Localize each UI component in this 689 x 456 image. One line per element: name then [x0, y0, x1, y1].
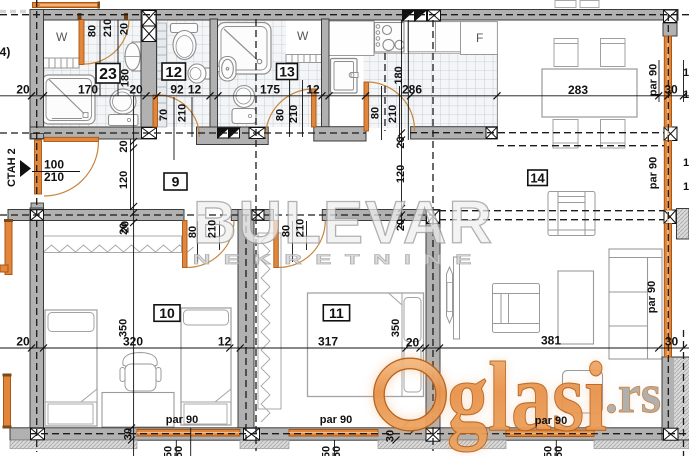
svg-text:50: 50 — [553, 446, 565, 456]
svg-text:9: 9 — [172, 174, 180, 190]
svg-text:4): 4) — [0, 45, 10, 59]
svg-text:210: 210 — [102, 19, 114, 37]
svg-text:10: 10 — [159, 305, 175, 321]
svg-text:W: W — [297, 29, 309, 43]
svg-text:par 90: par 90 — [535, 415, 567, 427]
svg-text:20: 20 — [395, 136, 407, 148]
svg-text:12: 12 — [165, 64, 182, 81]
svg-text:12: 12 — [306, 83, 320, 97]
svg-text:180: 180 — [120, 69, 132, 87]
svg-text:12: 12 — [218, 335, 232, 349]
svg-text:50: 50 — [331, 446, 343, 456]
svg-text:.rs: .rs — [605, 364, 661, 424]
svg-text:1: 1 — [683, 89, 689, 101]
svg-text:par 90: par 90 — [166, 414, 198, 426]
svg-text:20: 20 — [395, 219, 407, 231]
svg-text:210: 210 — [288, 105, 300, 123]
svg-text:20: 20 — [120, 221, 132, 233]
svg-text:317: 317 — [318, 335, 338, 349]
svg-text:20: 20 — [118, 140, 130, 152]
svg-text:210: 210 — [44, 170, 64, 184]
svg-text:20: 20 — [406, 336, 420, 350]
svg-text:120: 120 — [395, 165, 407, 183]
svg-text:286: 286 — [402, 83, 422, 97]
svg-text:92: 92 — [170, 83, 184, 97]
svg-text:350: 350 — [390, 319, 402, 337]
svg-text:1: 1 — [683, 67, 689, 79]
svg-text:23: 23 — [99, 66, 117, 83]
svg-text:80: 80 — [281, 225, 293, 237]
svg-text:par 90: par 90 — [648, 157, 660, 189]
svg-text:80: 80 — [370, 107, 382, 119]
svg-text:1: 1 — [683, 181, 689, 193]
svg-text:14: 14 — [530, 170, 545, 185]
svg-text:11: 11 — [329, 305, 344, 321]
svg-text:30: 30 — [123, 428, 135, 440]
svg-text:par 90: par 90 — [648, 64, 660, 96]
svg-text:par 90: par 90 — [646, 281, 658, 313]
svg-text:210: 210 — [177, 104, 189, 122]
svg-text:20: 20 — [16, 83, 30, 97]
svg-text:W: W — [56, 30, 68, 44]
svg-text:283: 283 — [568, 83, 588, 97]
svg-text:210: 210 — [207, 220, 219, 238]
svg-text:glasi: glasi — [447, 341, 607, 452]
svg-text:13: 13 — [279, 64, 295, 80]
svg-text:210: 210 — [295, 219, 307, 237]
svg-text:NEKRETNINE: NEKRETNINE — [193, 251, 485, 267]
svg-text:180: 180 — [393, 66, 405, 84]
svg-text:par 90: par 90 — [320, 414, 352, 426]
svg-text:80: 80 — [87, 25, 99, 37]
svg-text:30: 30 — [664, 83, 678, 97]
svg-text:12: 12 — [188, 83, 202, 97]
svg-text:20: 20 — [119, 23, 131, 35]
svg-text:СТАН 2: СТАН 2 — [6, 148, 18, 187]
svg-text:30: 30 — [665, 335, 679, 349]
svg-text:170: 170 — [78, 83, 98, 97]
svg-text:175: 175 — [260, 83, 280, 97]
svg-text:BULEVAR: BULEVAR — [193, 189, 494, 256]
svg-text:1: 1 — [683, 157, 689, 169]
svg-text:80: 80 — [187, 226, 199, 238]
svg-text:50: 50 — [173, 446, 185, 456]
svg-text:350: 350 — [118, 319, 130, 337]
svg-text:70: 70 — [158, 109, 170, 121]
svg-text:20: 20 — [16, 335, 30, 349]
svg-text:F: F — [476, 31, 483, 45]
svg-text:30: 30 — [385, 430, 397, 442]
svg-text:381: 381 — [541, 334, 561, 348]
svg-text:210: 210 — [387, 105, 399, 123]
svg-text:80: 80 — [275, 109, 287, 121]
svg-text:120: 120 — [118, 171, 130, 189]
